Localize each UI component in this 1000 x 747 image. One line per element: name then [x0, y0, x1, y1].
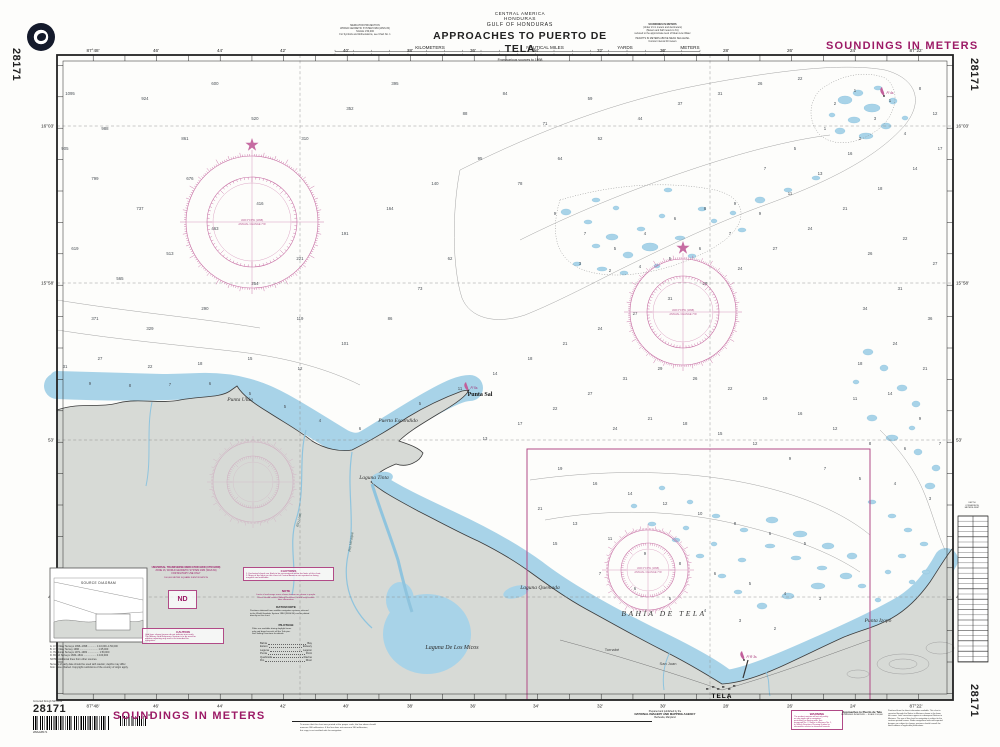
sounding: 88 [463, 111, 468, 116]
sounding: 395 [391, 81, 399, 86]
dot-leader [268, 654, 305, 655]
dot-leader [269, 647, 302, 648]
shoal-patch [675, 236, 685, 240]
shoal-patch [711, 542, 717, 546]
longitude-label: 24' [850, 704, 856, 709]
shoal-patch [812, 176, 820, 180]
longitude-label: 26' [787, 48, 793, 53]
shoal-patch [902, 116, 908, 120]
sounding: 18 [198, 361, 203, 366]
shoal-patch [730, 211, 736, 215]
sounding: 26 [693, 376, 698, 381]
rose-center-text: VAR 0°15'W (1998) [672, 308, 695, 312]
production-paragraph: Produced from the latest information ava… [888, 710, 996, 728]
sounding: 11 [608, 536, 613, 541]
publisher-line: Bethesda, Maryland [580, 716, 750, 719]
sounding: 22 [148, 364, 153, 369]
sounding: 22 [903, 236, 908, 241]
source-diagram-title-text: SOURCE DIAGRAM [81, 581, 116, 585]
sounding: 14 [493, 371, 498, 376]
sounding: 27 [933, 261, 938, 266]
sounding: 17 [938, 146, 943, 151]
shoal-patch [840, 573, 852, 579]
longitude-label: 40' [343, 48, 349, 53]
sounding: 19 [558, 466, 563, 471]
shoal-patch [858, 584, 866, 588]
sounding: 31 [63, 364, 68, 369]
source-footer-line: from those charted. Copyright restrictio… [50, 666, 165, 669]
longitude-label: 28' [723, 48, 729, 53]
scale-bar-label: METERS [680, 45, 699, 50]
shoal-patch [811, 583, 825, 589]
sounding: 352 [346, 106, 354, 111]
shoal-patch [642, 243, 658, 251]
depth-conversion-ladder [958, 516, 988, 662]
sounding: 21 [648, 416, 653, 421]
sounding: 17 [518, 421, 523, 426]
sounding: 619 [71, 246, 79, 251]
sounding: 27 [633, 311, 638, 316]
sounding: 11 [853, 396, 858, 401]
sounding: 26 [758, 81, 763, 86]
shoal-patch [757, 603, 767, 609]
sounding: 27 [98, 356, 103, 361]
shoal-patch [664, 188, 672, 192]
dot-leader [268, 644, 306, 645]
shoal-patch [734, 590, 742, 594]
sounding: 15 [553, 541, 558, 546]
chart-number-top-right: 28171 [966, 58, 980, 91]
sounding: 11 [788, 191, 793, 196]
shoal-patch [864, 104, 880, 112]
cautions-line: irregular and unreliable. [246, 577, 331, 579]
sounding: 78 [518, 181, 523, 186]
sounding: 329 [146, 326, 154, 331]
sounding: 565 [116, 276, 124, 281]
sounding: 24 [738, 266, 743, 271]
latitude-label: 15°58' [41, 281, 54, 286]
shoal-patch [793, 531, 807, 537]
place-label: Laguna Tinta [358, 475, 389, 481]
sounding: 24 [808, 226, 813, 231]
shoal-patch [912, 401, 920, 407]
sounding: 31 [668, 296, 673, 301]
rose-center-text: VAR 0°15'W (1998) [241, 218, 264, 222]
datum-note-line: directly on this chart. [250, 615, 322, 618]
dot-leader [265, 661, 305, 662]
longitude-label: 38' [407, 704, 413, 709]
sounding: 22 [553, 406, 558, 411]
shoal-patch [738, 228, 746, 232]
longitude-label: 42' [280, 704, 286, 709]
scale-check-note: To ensure that this chart was printed at… [300, 724, 480, 733]
sounding: 13 [818, 171, 823, 176]
sounding: 62 [448, 256, 453, 261]
sounding: 71 [543, 121, 548, 126]
sounding: 371 [91, 316, 99, 321]
shoal-patch [838, 96, 852, 104]
latitude-label: 15°58' [956, 281, 969, 286]
sounding: 13 [573, 521, 578, 526]
place-label: Punta Izopo [864, 618, 892, 624]
source-list-line: NOTE: Additional lines from other source… [50, 658, 160, 661]
shoal-patch [561, 209, 571, 215]
utm-square-id-box: ND [168, 590, 197, 609]
shoal-patch [592, 198, 600, 202]
latitude-label: 16°03' [41, 124, 54, 129]
shoal-patch [755, 197, 765, 203]
chart-number-bottom-left: 28171 [33, 703, 66, 717]
sounding: 22 [728, 386, 733, 391]
sounding: 84 [503, 91, 508, 96]
sounding: 988 [101, 126, 109, 131]
sounding: 14 [628, 491, 633, 496]
longitude-label: 87°48' [87, 704, 100, 709]
shoal-patch [848, 117, 860, 123]
longitude-label: 26' [787, 704, 793, 709]
sounding: 95 [478, 156, 483, 161]
sounding: 13 [483, 436, 488, 441]
nga-seal [27, 23, 55, 51]
longitude-label: 28' [723, 704, 729, 709]
place-label: San Juan [660, 661, 677, 666]
sounding: 676 [186, 176, 194, 181]
place-label: Puerto Escondido [377, 418, 418, 424]
sounding: 18 [528, 356, 533, 361]
ladder-caption-line: METERS–FEET [952, 507, 992, 510]
pilotage-line: See Sailing Directions for details. [252, 633, 320, 636]
sounding: 16 [848, 151, 853, 156]
sounding: 290 [201, 306, 209, 311]
longitude-label: 46' [153, 704, 159, 709]
sounding: 18 [683, 421, 688, 426]
rose-center-text: ANNUAL CHANGE 7'W [634, 570, 662, 574]
shoal-patch [920, 542, 928, 546]
sounding: 31 [898, 286, 903, 291]
place-label: Punta Ulúa [226, 397, 253, 403]
sounding: 52 [598, 136, 603, 141]
publisher-block: Prepared and published by the NATIONAL I… [580, 710, 750, 719]
shoal-patch [880, 365, 888, 371]
warning-box: WARNING The prudent mariner will not rel… [791, 710, 843, 730]
sounding: 64 [558, 156, 563, 161]
shoal-patch [718, 574, 726, 578]
sounding: 11 [458, 386, 463, 391]
sounding: 221 [296, 256, 304, 261]
note-line: later information. [250, 599, 322, 602]
shoal-patch [765, 544, 775, 548]
sounding: 463 [211, 226, 219, 231]
glossary-translation: River [306, 659, 312, 662]
warning-line: information relative to observed hazards… [794, 726, 840, 728]
longitude-label: 87°22' [910, 704, 923, 709]
shoal-patch [904, 528, 912, 532]
sounding: 24 [598, 326, 603, 331]
shoal-patch [822, 543, 834, 549]
scale-check-line [292, 721, 652, 722]
sounding: 36 [928, 316, 933, 321]
sounding: 15 [718, 431, 723, 436]
sounding: 31 [623, 376, 628, 381]
shoal-patch [648, 522, 656, 526]
sounding: 513 [166, 251, 174, 256]
sounding: 12 [933, 111, 938, 116]
longitude-label: 36' [470, 704, 476, 709]
shoal-patch [683, 526, 689, 530]
sounding: 21 [923, 366, 928, 371]
longitude-label: 40' [343, 704, 349, 709]
light-label: Fl R 3s [747, 655, 758, 659]
longitude-label: 46' [153, 48, 159, 53]
sounding: 73 [418, 286, 423, 291]
stock-barcode [33, 716, 109, 730]
sounding: 21 [563, 341, 568, 346]
shoal-patch [885, 570, 891, 574]
shoal-patch [835, 128, 845, 134]
latitude-label: 53' [956, 438, 962, 443]
sounding: 18 [878, 186, 883, 191]
sounding: 12 [663, 501, 668, 506]
shoal-patch [766, 517, 778, 523]
place-label: Laguna Quemada [519, 585, 560, 591]
place-label: Punta Sal [468, 392, 493, 398]
sounding: 26 [868, 251, 873, 256]
source-list: A. U.S. Navy Surveys 1996–1998 .........… [50, 645, 160, 661]
sounding: 10 [698, 511, 703, 516]
latitude-label: 16°03' [956, 124, 969, 129]
sounding: 59 [588, 96, 593, 101]
shoal-patch [897, 385, 907, 391]
shoal-patch [829, 113, 835, 117]
sounding: 737 [136, 206, 144, 211]
rose-center-text: VAR 0°15'W (1998) [637, 566, 660, 570]
sounding: 861 [181, 136, 189, 141]
longitude-label: 87°48' [87, 48, 100, 53]
longitude-label: 30' [660, 704, 666, 709]
shoal-patch [740, 528, 748, 532]
sounding: 924 [141, 96, 149, 101]
longitude-label: 44' [217, 704, 223, 709]
sounding: 22 [798, 76, 803, 81]
soundings-note-line: reduced to the approximate level of Mean… [595, 32, 730, 35]
shoal-patch [863, 349, 873, 355]
sounding: 799 [91, 176, 99, 181]
ladder-caption: DEPTH CONVERSION METERS–FEET [952, 502, 992, 510]
sounding: 416 [256, 201, 264, 206]
shoal-patch [687, 500, 693, 504]
longitude-label: 44' [217, 48, 223, 53]
sounding: 12 [298, 366, 303, 371]
soundings-banner-top: SOUNDINGS IN METERS [826, 40, 978, 54]
sounding: 29 [658, 366, 663, 371]
sounding: 31 [718, 91, 723, 96]
utm-caution-box: CAUTION Grid lines shown hereon do not i… [142, 628, 224, 644]
sounding: 520 [251, 116, 259, 121]
rose-center-text: ANNUAL CHANGE 7'W [669, 312, 697, 316]
place-label: Tornabé [605, 647, 620, 652]
soundings-banner-bottom: SOUNDINGS IN METERS [113, 710, 265, 724]
shoal-patch [606, 234, 618, 240]
glossary-row: RíoRiver [260, 659, 312, 662]
shoal-patch [592, 244, 600, 248]
utm-caution-line: navigation. [145, 640, 221, 642]
utm-square-id: ND [177, 596, 187, 603]
sounding: 119 [297, 316, 304, 321]
sounding: 18 [858, 361, 863, 366]
sounding: 16 [593, 481, 598, 486]
shoal-patch [867, 415, 877, 421]
projection-block: MERCATOR PROJECTION WORLD GEODETIC SYSTE… [295, 24, 435, 37]
light-label: Fl 4s [887, 91, 894, 95]
sounding: 15 [248, 356, 253, 361]
source-footer: Surveys of early date should be used wit… [50, 663, 165, 669]
sounding: 101 [341, 341, 349, 346]
sounding: 14 [913, 166, 918, 171]
sounding: 24 [613, 426, 618, 431]
shoal-patch [597, 267, 607, 271]
glossary-table: BahíaBayEsteroEstuaryLagunaLagoonPuntaPo… [256, 642, 316, 662]
longitude-label: 34' [533, 704, 539, 709]
shoal-patch [888, 514, 896, 518]
note-block: NOTE Limits of anchorage areas shown her… [250, 590, 322, 602]
shoal-patch [868, 500, 876, 504]
soundings-note-line: Contour interval 40 meters [595, 40, 730, 43]
sounding: 905 [61, 146, 69, 151]
sounding: 16 [798, 411, 803, 416]
longitude-label: 42' [280, 48, 286, 53]
longitude-label: 30' [660, 48, 666, 53]
shoal-patch [712, 514, 720, 518]
shoal-patch [922, 570, 930, 574]
place-label: BAHÍA DE TELA [621, 608, 706, 618]
sounding: 310 [301, 136, 309, 141]
sounding: 21 [538, 506, 543, 511]
nautical-chart-page: 1095988924861799737676619565513463416371… [0, 0, 1000, 747]
sounding: 12 [753, 441, 758, 446]
projection-line: For Symbols and Abbreviations, see Chart… [295, 33, 435, 36]
sounding: 34 [863, 306, 868, 311]
shoal-patch [738, 558, 746, 562]
sounding: 27 [773, 246, 778, 251]
shoal-patch [932, 465, 940, 471]
sounding: 21 [843, 206, 848, 211]
sounding: 164 [386, 206, 394, 211]
source-diagram-title: SOURCE DIAGRAM [50, 570, 147, 590]
dot-leader [270, 651, 302, 652]
longitude-label: 32' [597, 704, 603, 709]
latitude-label: 53' [48, 438, 54, 443]
shoal-patch [631, 504, 637, 508]
sounding: 140 [431, 181, 439, 186]
sounding: 24 [893, 341, 898, 346]
shoal-patch [898, 554, 906, 558]
sounding: 37 [678, 101, 683, 106]
shoal-patch [584, 220, 592, 224]
shoal-patch [613, 206, 619, 210]
place-label: Laguna De Los Micos [424, 645, 479, 651]
sounding: 1095 [65, 91, 75, 96]
sounding: 14 [888, 391, 893, 396]
shoal-patch [909, 580, 915, 584]
production-line: latest editions of applicable publicatio… [888, 725, 996, 728]
shoal-patch [696, 554, 704, 558]
utm-square-caption: 100,000 METER SQUARE IDENTIFICATION [140, 577, 232, 580]
title-sources: From various sources to 1998 [420, 58, 620, 62]
shoal-patch [914, 449, 922, 455]
shoal-patch [620, 271, 628, 275]
pilotage-block: PILOTAGE Pilots are available during day… [252, 624, 320, 636]
shoal-patch [875, 598, 881, 602]
rose-center-text: ANNUAL CHANGE 7'W [238, 222, 266, 226]
shoal-patch [688, 254, 696, 258]
shoal-patch [909, 426, 915, 430]
shoal-patch [847, 553, 857, 559]
sounding: 254 [251, 281, 259, 286]
shoal-patch [853, 380, 859, 384]
sounding: 191 [341, 231, 349, 236]
cautions-box: CAUTIONS 1. Uncharted shoals are likely … [243, 567, 334, 581]
shoal-patch [817, 566, 827, 570]
glossary-term: Río [260, 659, 264, 662]
title-body: GULF OF HONDURAS [420, 22, 620, 29]
sounding: 19 [763, 396, 768, 401]
sounding: 12 [833, 426, 838, 431]
barcode-label: 28IAA28171 [33, 731, 47, 734]
approaches-line2: SOUNDINGS IN METERS — SCALE 1:50,000 [840, 714, 884, 717]
shoal-patch [791, 556, 801, 560]
utm-line: FOR MILITARY USE ONLY [140, 572, 232, 575]
shoal-patch [711, 219, 717, 223]
approaches-label: Approaches to Puerto de Tela SOUNDINGS I… [840, 711, 884, 717]
shoal-patch [659, 486, 665, 490]
datum-note-block: DATUM NOTE Positions obtained from satel… [250, 606, 322, 618]
utm-grid-note: UNIVERSAL TRANSVERSE MERCATOR GRID (UTM … [140, 566, 232, 580]
sounding: 86 [388, 316, 393, 321]
soundings-note-block: SOUNDINGS IN METERS (Under 21 in meters … [595, 23, 730, 43]
dot-leader [273, 657, 303, 658]
light-label: Fl 5s [471, 386, 478, 390]
shoal-patch [925, 483, 935, 489]
sounding: 27 [588, 391, 593, 396]
title-block: CENTRAL AMERICA HONDURAS GULF OF HONDURA… [420, 11, 620, 62]
title-main: APPROACHES TO PUERTO DE TELA [420, 30, 620, 56]
shoal-patch [623, 252, 633, 258]
shoal-patch [659, 214, 665, 218]
chart-number-top-left: 28171 [8, 48, 22, 81]
sounding: 600 [211, 81, 219, 86]
scale-note-line: this copy is not certified safe for navi… [300, 730, 480, 733]
sounding: 44 [638, 116, 643, 121]
